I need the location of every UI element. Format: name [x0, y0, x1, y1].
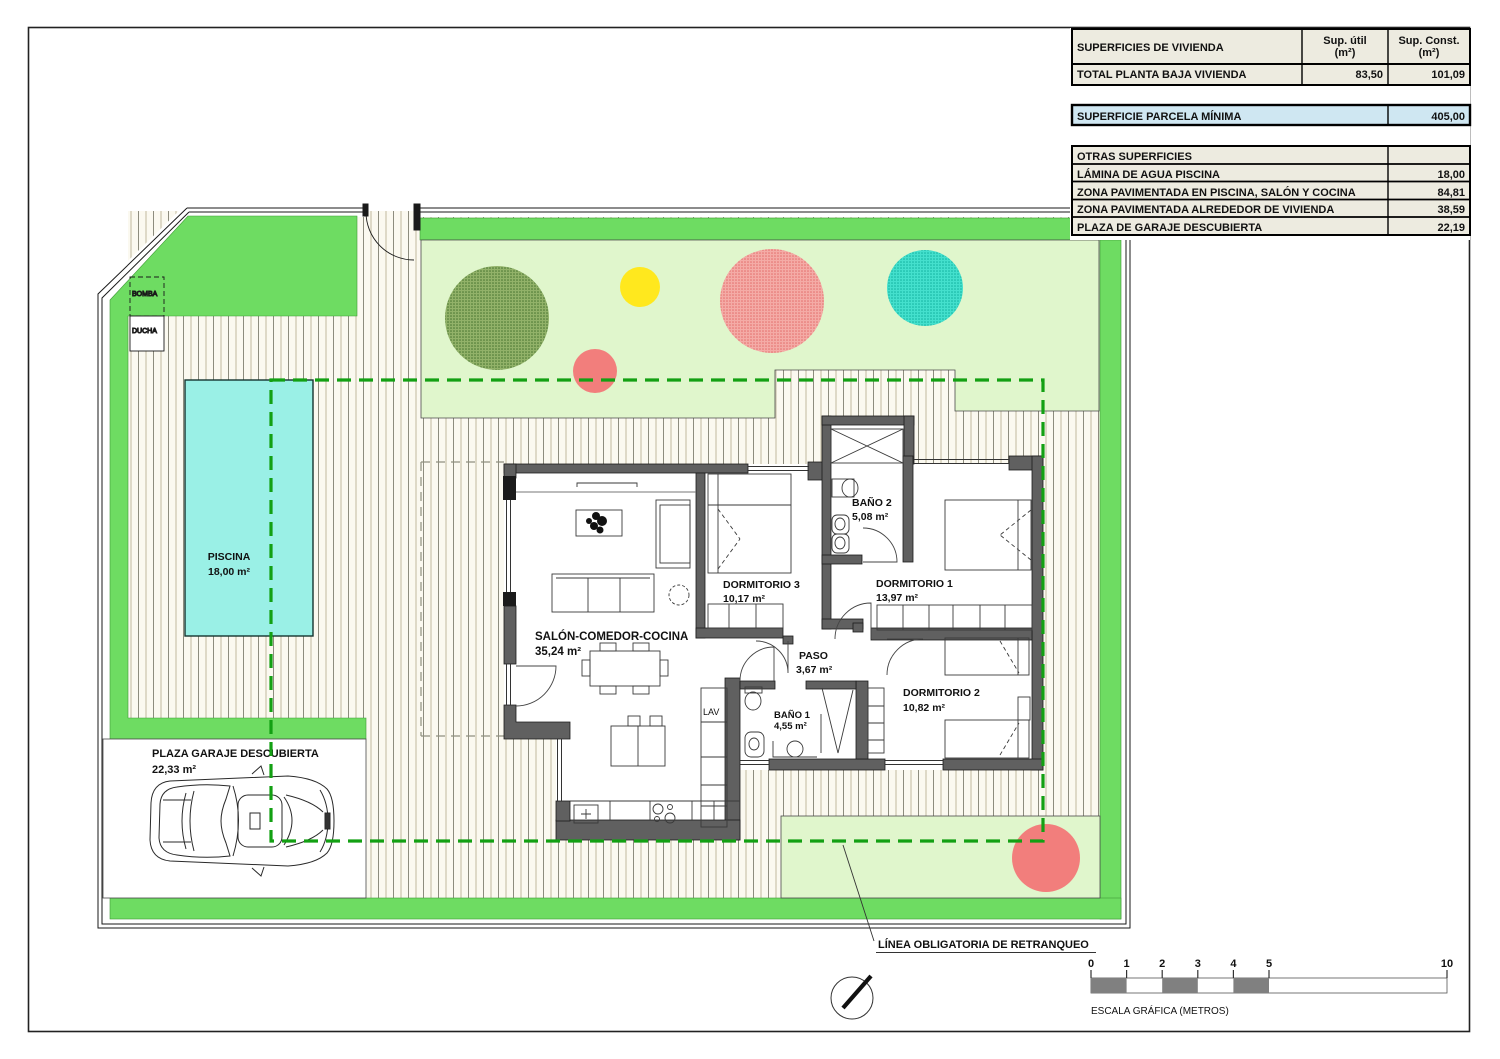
svg-text:10,82 m²: 10,82 m²: [903, 702, 946, 714]
svg-text:101,09: 101,09: [1431, 69, 1465, 81]
svg-text:SUPERFICIE PARCELA MÍNIMA: SUPERFICIE PARCELA MÍNIMA: [1077, 110, 1241, 123]
svg-text:PASO: PASO: [799, 650, 828, 662]
svg-text:TOTAL PLANTA BAJA VIVIENDA: TOTAL PLANTA BAJA VIVIENDA: [1077, 69, 1247, 81]
svg-text:5: 5: [1266, 958, 1272, 970]
svg-text:18,00 m²: 18,00 m²: [208, 566, 251, 578]
svg-text:OTRAS SUPERFICIES: OTRAS SUPERFICIES: [1077, 151, 1192, 163]
svg-text:Sup. Const.: Sup. Const.: [1398, 35, 1459, 47]
svg-text:3: 3: [1195, 958, 1201, 970]
svg-text:10: 10: [1441, 958, 1453, 970]
svg-text:4,55 m²: 4,55 m²: [774, 721, 807, 732]
svg-text:22,33 m²: 22,33 m²: [152, 764, 196, 776]
svg-text:DUCHA: DUCHA: [132, 328, 157, 335]
svg-text:0: 0: [1088, 958, 1094, 970]
svg-text:DORMITORIO 3: DORMITORIO 3: [723, 579, 800, 591]
svg-text:3,67 m²: 3,67 m²: [796, 664, 833, 676]
svg-text:DORMITORIO 2: DORMITORIO 2: [903, 687, 980, 699]
svg-text:4: 4: [1230, 958, 1237, 970]
svg-text:BOMBA: BOMBA: [132, 291, 158, 298]
svg-text:22,19: 22,19: [1437, 222, 1465, 234]
svg-text:10,17 m²: 10,17 m²: [723, 593, 766, 605]
svg-text:LÍNEA OBLIGATORIA DE RETRANQUE: LÍNEA OBLIGATORIA DE RETRANQUEO: [878, 938, 1089, 951]
svg-text:2: 2: [1159, 958, 1165, 970]
svg-text:PLAZA GARAJE DESCUBIERTA: PLAZA GARAJE DESCUBIERTA: [152, 748, 319, 760]
svg-text:405,00: 405,00: [1431, 111, 1465, 123]
svg-text:SUPERFICIES DE VIVIENDA: SUPERFICIES DE VIVIENDA: [1077, 42, 1224, 54]
svg-text:BAÑO 2: BAÑO 2: [852, 496, 892, 509]
svg-text:SALÓN-COMEDOR-COCINA: SALÓN-COMEDOR-COCINA: [535, 630, 688, 643]
svg-text:84,81: 84,81: [1437, 187, 1465, 199]
svg-text:Sup. útil: Sup. útil: [1323, 35, 1366, 47]
svg-text:ESCALA GRÁFICA (METROS): ESCALA GRÁFICA (METROS): [1091, 1004, 1229, 1017]
svg-text:LAV: LAV: [703, 707, 719, 717]
svg-text:5,08 m²: 5,08 m²: [852, 511, 889, 523]
svg-text:83,50: 83,50: [1355, 69, 1383, 81]
svg-text:PISCINA: PISCINA: [208, 551, 251, 563]
svg-text:BAÑO 1: BAÑO 1: [774, 710, 811, 721]
svg-text:38,59: 38,59: [1437, 204, 1465, 216]
svg-text:ZONA PAVIMENTADA EN PISCINA, S: ZONA PAVIMENTADA EN PISCINA, SALÓN Y COC…: [1077, 186, 1356, 199]
svg-text:18,00: 18,00: [1437, 169, 1465, 181]
svg-text:1: 1: [1124, 958, 1130, 970]
svg-text:(m²): (m²): [1419, 47, 1440, 59]
svg-text:35,24 m²: 35,24 m²: [535, 646, 581, 658]
svg-text:13,97 m²: 13,97 m²: [876, 592, 919, 604]
svg-text:ZONA PAVIMENTADA ALREDEDOR DE: ZONA PAVIMENTADA ALREDEDOR DE VIVIENDA: [1077, 204, 1334, 216]
svg-text:DORMITORIO 1: DORMITORIO 1: [876, 578, 953, 590]
svg-text:PLAZA DE GARAJE DESCUBIERTA: PLAZA DE GARAJE DESCUBIERTA: [1077, 222, 1262, 234]
svg-text:LÁMINA DE AGUA PISCINA: LÁMINA DE AGUA PISCINA: [1077, 168, 1220, 181]
svg-text:(m²): (m²): [1335, 47, 1356, 59]
